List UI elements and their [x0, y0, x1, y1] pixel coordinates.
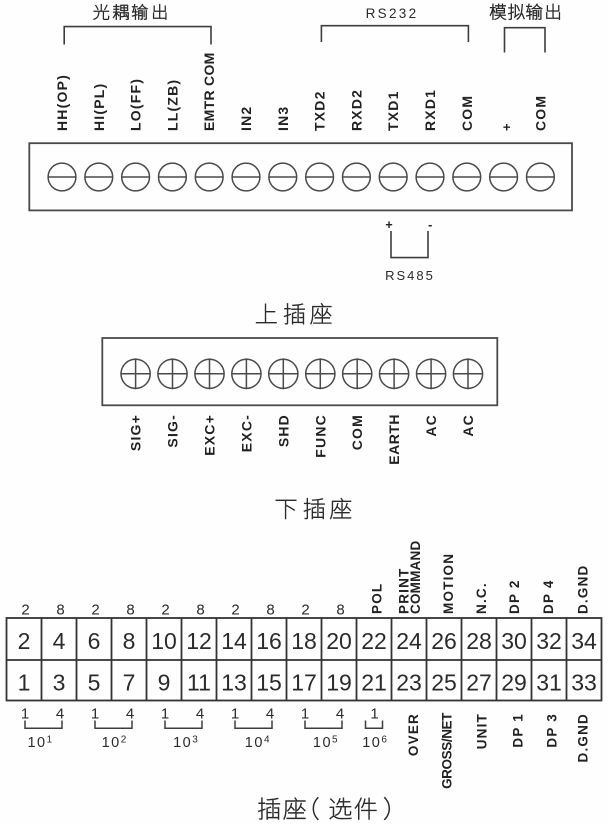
svg-text:7: 7 — [123, 670, 136, 696]
svg-text:IN2: IN2 — [238, 106, 254, 131]
svg-text:EXC+: EXC+ — [202, 414, 218, 456]
svg-text:15: 15 — [256, 670, 282, 696]
svg-text:8: 8 — [126, 602, 134, 619]
svg-text:1: 1 — [91, 706, 99, 723]
svg-text:29: 29 — [501, 670, 527, 696]
svg-text:19: 19 — [326, 670, 352, 696]
svg-text:8: 8 — [123, 628, 136, 654]
svg-text:RS485: RS485 — [385, 268, 435, 283]
svg-text:33: 33 — [571, 670, 597, 696]
svg-text:EARTH: EARTH — [386, 414, 402, 465]
svg-text:IN3: IN3 — [275, 106, 291, 131]
svg-text:1: 1 — [370, 706, 378, 723]
svg-text:TXD1: TXD1 — [385, 90, 401, 131]
svg-text:EMTR COM: EMTR COM — [201, 52, 217, 131]
svg-text:UNIT: UNIT — [475, 713, 490, 749]
svg-text:26: 26 — [431, 628, 457, 654]
svg-text:2: 2 — [231, 602, 239, 619]
svg-text:22: 22 — [361, 628, 387, 654]
svg-text:23: 23 — [396, 670, 422, 696]
svg-text:GROSS/NET: GROSS/NET — [440, 712, 455, 789]
svg-text:+: + — [385, 218, 392, 232]
svg-text:1: 1 — [161, 706, 169, 723]
svg-text:4: 4 — [266, 706, 274, 723]
svg-text:N.C.: N.C. — [474, 582, 489, 614]
svg-text:2: 2 — [91, 602, 99, 619]
svg-text:FUNC: FUNC — [312, 414, 328, 458]
svg-text:8: 8 — [266, 602, 274, 619]
svg-text:28: 28 — [466, 628, 492, 654]
svg-text:17: 17 — [291, 670, 317, 696]
svg-text:5: 5 — [88, 670, 101, 696]
svg-text:30: 30 — [501, 628, 527, 654]
svg-text:AC: AC — [423, 414, 439, 437]
svg-text:3: 3 — [53, 670, 66, 696]
svg-text:8: 8 — [196, 602, 204, 619]
svg-text:OVER: OVER — [406, 713, 421, 756]
svg-text:AC: AC — [460, 414, 476, 437]
svg-text:2: 2 — [21, 602, 29, 619]
svg-text:8: 8 — [56, 602, 64, 619]
svg-text:4: 4 — [126, 706, 134, 723]
svg-text:10: 10 — [151, 628, 177, 654]
svg-text:EXC-: EXC- — [238, 414, 254, 452]
svg-text:6: 6 — [88, 628, 101, 654]
svg-text:11: 11 — [187, 670, 211, 696]
svg-text:RS232: RS232 — [366, 6, 419, 21]
svg-text:4: 4 — [53, 628, 66, 654]
svg-text:16: 16 — [256, 628, 282, 654]
svg-text:COM: COM — [459, 95, 475, 131]
svg-text:21: 21 — [361, 670, 387, 696]
svg-text:COM: COM — [349, 414, 365, 450]
svg-text:1: 1 — [18, 670, 31, 696]
svg-text:1: 1 — [301, 706, 309, 723]
svg-text:25: 25 — [431, 670, 457, 696]
svg-text:MOTION: MOTION — [441, 553, 456, 614]
svg-text:DP 1: DP 1 — [511, 713, 526, 748]
svg-text:4: 4 — [56, 706, 64, 723]
svg-text:34: 34 — [571, 628, 597, 654]
svg-text:1: 1 — [231, 706, 239, 723]
svg-text:32: 32 — [536, 628, 562, 654]
svg-text:SHD: SHD — [275, 414, 291, 447]
svg-text:SIG+: SIG+ — [128, 414, 144, 451]
svg-text:RXD1: RXD1 — [422, 89, 438, 131]
svg-text:D.GND: D.GND — [576, 565, 591, 615]
svg-text:9: 9 — [158, 670, 171, 696]
svg-text:2: 2 — [301, 602, 309, 619]
svg-text:HH(OP): HH(OP) — [54, 74, 70, 131]
svg-text:27: 27 — [466, 670, 492, 696]
svg-text:-: - — [428, 218, 432, 232]
svg-text:TXD2: TXD2 — [312, 90, 328, 131]
svg-text:24: 24 — [396, 628, 422, 654]
svg-text:DP 2: DP 2 — [507, 579, 522, 614]
svg-text:COMMAND: COMMAND — [408, 541, 423, 614]
svg-text:LL(ZB): LL(ZB) — [164, 79, 180, 131]
svg-text:2: 2 — [161, 602, 169, 619]
svg-text:12: 12 — [186, 628, 212, 654]
svg-text:RXD2: RXD2 — [348, 89, 364, 131]
svg-text:2: 2 — [18, 628, 31, 654]
svg-text:1: 1 — [21, 706, 29, 723]
svg-text:18: 18 — [291, 628, 317, 654]
svg-text:4: 4 — [196, 706, 204, 723]
svg-text:HI(PL): HI(PL) — [91, 83, 107, 131]
svg-text:POL: POL — [370, 583, 385, 614]
svg-text:+: + — [499, 123, 514, 131]
svg-text:13: 13 — [221, 670, 247, 696]
svg-text:DP 4: DP 4 — [541, 579, 556, 614]
svg-text:4: 4 — [336, 706, 344, 723]
svg-text:SIG-: SIG- — [165, 414, 181, 448]
svg-text:COM: COM — [532, 95, 548, 131]
svg-text:LO(FF): LO(FF) — [128, 78, 144, 131]
svg-text:8: 8 — [336, 602, 344, 619]
svg-text:DP 3: DP 3 — [545, 713, 560, 748]
svg-text:14: 14 — [221, 628, 247, 654]
svg-text:31: 31 — [536, 670, 562, 696]
svg-text:20: 20 — [326, 628, 352, 654]
svg-text:D.GND: D.GND — [576, 713, 591, 763]
